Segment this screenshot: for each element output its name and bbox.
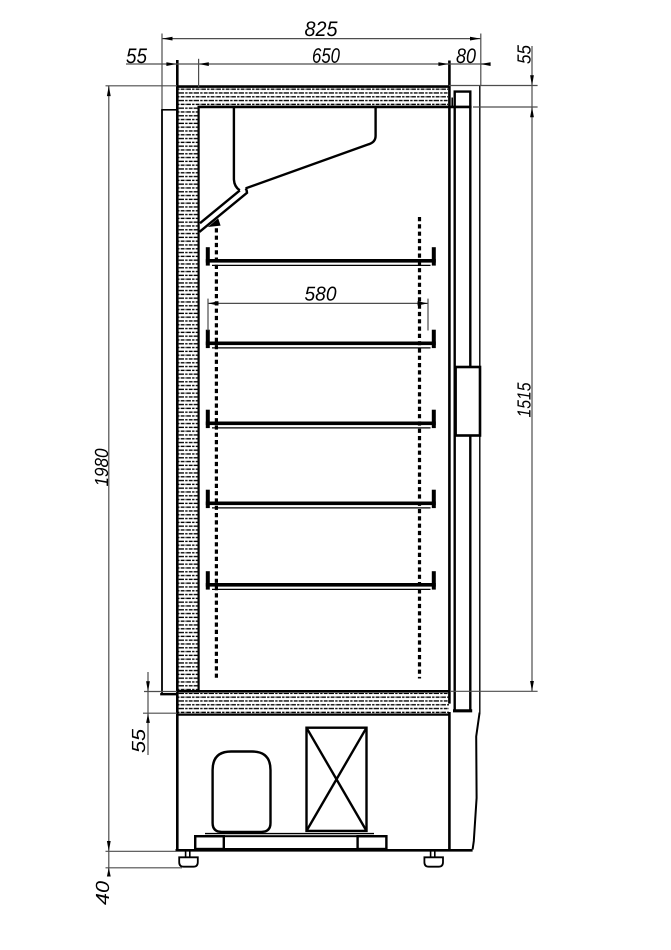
svg-text:80: 80 — [456, 45, 476, 68]
svg-text:1980: 1980 — [92, 448, 113, 486]
svg-text:40: 40 — [93, 881, 114, 905]
svg-text:650: 650 — [312, 45, 340, 68]
svg-text:580: 580 — [304, 283, 336, 305]
svg-text:1515: 1515 — [515, 382, 536, 417]
svg-text:55: 55 — [129, 729, 150, 753]
svg-text:825: 825 — [304, 18, 337, 41]
svg-text:55: 55 — [126, 45, 147, 68]
svg-text:55: 55 — [515, 45, 536, 64]
